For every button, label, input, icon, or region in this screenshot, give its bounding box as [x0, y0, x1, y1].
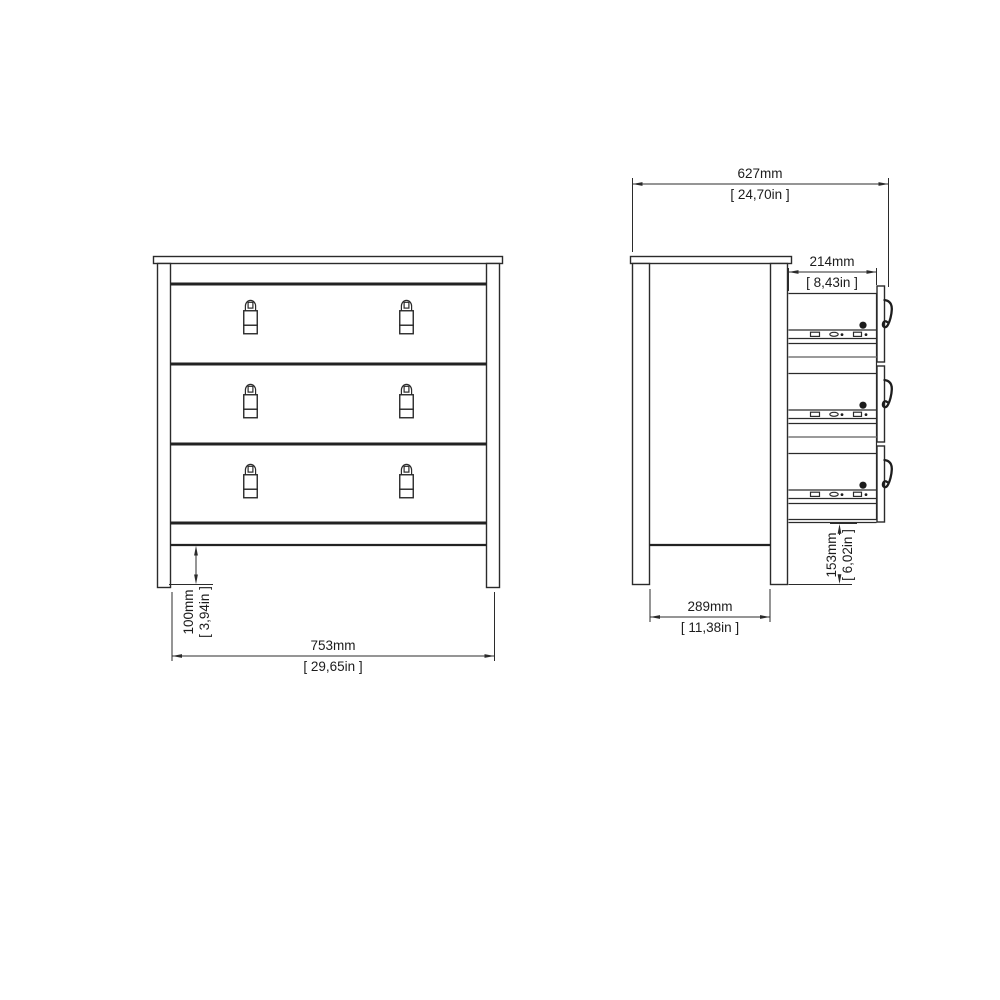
front-right-side-panel [487, 264, 500, 588]
drawer3-handle-right [400, 464, 414, 497]
dim-front-leg-height [169, 546, 213, 585]
side-base-span-mm-label: 289mm [610, 599, 810, 615]
side-drawer-depth-in-label: [ 8,43in ] [732, 275, 932, 291]
drawer1-handle-left [244, 300, 258, 333]
drawer1-handle-right [400, 300, 414, 333]
drawer1-slide-rail [789, 322, 877, 344]
front-width-in-label: [ 29,65in ] [233, 659, 433, 675]
drawing-sheet: 753mm [ 29,65in ] 100mm [ 3,94in ] 627mm… [0, 0, 1000, 1000]
front-width-mm-label: 753mm [233, 638, 433, 654]
side-leg-height-in-label: [ 6,02in ] [840, 529, 856, 581]
front-leg-height-label: 100mm [ 3,94in ] [181, 584, 213, 640]
technical-drawing-canvas [0, 0, 1000, 1000]
drawer2-handle-left [244, 384, 258, 417]
side-depth-in-label: [ 24,70in ] [660, 187, 860, 203]
front-left-side-panel [158, 264, 171, 588]
drawer2-handle-right [400, 384, 414, 417]
side-base-span-in-label: [ 11,38in ] [610, 620, 810, 636]
front-leg-height-mm-label: 100mm [181, 590, 197, 635]
front-leg-height-in-label: [ 3,94in ] [197, 586, 213, 638]
front-top-board [154, 257, 503, 264]
drawer2-slide-rail [789, 402, 877, 424]
side-front-panel [771, 264, 788, 585]
side-back-panel [633, 264, 650, 585]
drawer3-slide-rail [789, 482, 877, 504]
side-leg-height-label: 153mm [ 6,02in ] [824, 527, 856, 583]
side-drawer-assembly [789, 286, 892, 523]
drawer3-handle-left [244, 464, 258, 497]
side-drawer-depth-mm-label: 214mm [732, 254, 932, 270]
side-leg-height-mm-label: 153mm [824, 533, 840, 578]
side-depth-mm-label: 627mm [660, 166, 860, 182]
